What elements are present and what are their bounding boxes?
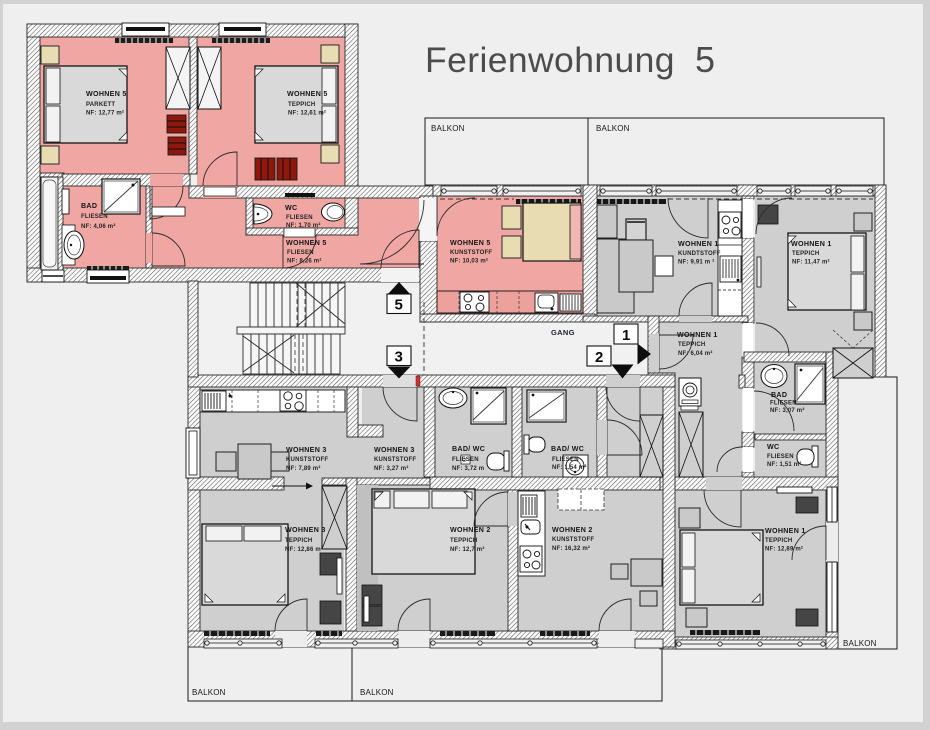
svg-text:5: 5: [695, 39, 715, 80]
svg-text:TEPPICH: TEPPICH: [678, 342, 705, 348]
svg-text:5: 5: [395, 297, 403, 314]
svg-text:1: 1: [622, 327, 630, 344]
svg-text:KUNSTSTOFF: KUNSTSTOFF: [450, 250, 492, 256]
svg-text:BALKON: BALKON: [192, 688, 226, 697]
svg-text:FLIESEN: FLIESEN: [287, 250, 314, 256]
svg-text:WOHNEN 1: WOHNEN 1: [677, 331, 718, 339]
svg-text:3: 3: [395, 349, 403, 366]
svg-text:GANG: GANG: [551, 328, 575, 337]
svg-text:NF: 7,89 m²: NF: 7,89 m²: [286, 465, 321, 472]
svg-text:WOHNEN 1: WOHNEN 1: [678, 240, 719, 248]
svg-text:PARKETT: PARKETT: [86, 102, 115, 108]
svg-text:WOHNEN 5: WOHNEN 5: [86, 90, 127, 98]
svg-text:WOHNEN 2: WOHNEN 2: [552, 526, 593, 534]
svg-text:NF: 3,72 m: NF: 3,72 m: [452, 466, 484, 472]
svg-text:FLIESEN: FLIESEN: [452, 457, 479, 463]
svg-text:NF: 1,70 m²: NF: 1,70 m²: [286, 222, 321, 229]
svg-text:2: 2: [595, 349, 603, 366]
svg-text:NF: 3,07 m²: NF: 3,07 m²: [770, 407, 805, 414]
svg-text:NF: 3,27 m²: NF: 3,27 m²: [374, 465, 409, 472]
svg-text:TEPPICH: TEPPICH: [288, 102, 315, 108]
svg-text:WOHNEN 5: WOHNEN 5: [286, 239, 327, 247]
svg-text:BALKON: BALKON: [596, 124, 630, 133]
svg-text:NF: 1,51 m²: NF: 1,51 m²: [767, 461, 802, 468]
svg-text:NF: 6,04 m²: NF: 6,04 m²: [678, 350, 713, 357]
svg-text:TEPPICH: TEPPICH: [450, 538, 477, 544]
svg-text:NF: 10,03 m²: NF: 10,03 m²: [450, 258, 488, 265]
svg-text:KUNSTSTOFF: KUNSTSTOFF: [374, 457, 416, 463]
svg-text:BALKON: BALKON: [360, 688, 394, 697]
svg-text:WOHNEN 3: WOHNEN 3: [285, 526, 326, 534]
svg-text:FLIESEN: FLIESEN: [770, 401, 797, 407]
svg-text:TEPPICH: TEPPICH: [285, 538, 312, 544]
svg-text:KUNDTSTOFF: KUNDTSTOFF: [678, 251, 721, 257]
svg-text:BAD/ WC: BAD/ WC: [551, 445, 584, 453]
svg-text:KUNSTSTOFF: KUNSTSTOFF: [286, 457, 328, 463]
svg-text:Ferienwohnung: Ferienwohnung: [425, 40, 675, 80]
svg-text:NF: 4,06 m²: NF: 4,06 m²: [81, 223, 116, 230]
svg-text:BALKON: BALKON: [843, 639, 877, 648]
svg-text:FLIESEN: FLIESEN: [767, 454, 794, 460]
svg-text:BAD/ WC: BAD/ WC: [452, 445, 485, 453]
svg-text:KUNSTSTOFF: KUNSTSTOFF: [552, 537, 594, 543]
svg-text:NF: 12,7 m²: NF: 12,7 m²: [450, 546, 485, 553]
svg-text:WOHNEN 2: WOHNEN 2: [450, 526, 491, 534]
svg-text:NF: 12,77 m²: NF: 12,77 m²: [86, 110, 124, 117]
svg-text:NF: 12,61 m²: NF: 12,61 m²: [288, 110, 326, 117]
svg-text:WC: WC: [285, 204, 297, 212]
svg-text:WOHNEN 1: WOHNEN 1: [765, 527, 806, 535]
svg-text:NF: 9,91 m ²: NF: 9,91 m ²: [678, 259, 714, 266]
svg-text:NF: 1,54 m²: NF: 1,54 m²: [552, 464, 587, 471]
svg-text:FLIESEN: FLIESEN: [286, 215, 313, 221]
svg-text:TEPPICH: TEPPICH: [765, 538, 792, 544]
svg-text:FLIESEN: FLIESEN: [552, 457, 579, 463]
svg-text:WOHNEN 3: WOHNEN 3: [286, 446, 327, 454]
svg-text:NF: 8,26 m²: NF: 8,26 m²: [287, 258, 322, 265]
svg-text:NF: 12,86 m²: NF: 12,86 m²: [285, 546, 323, 553]
svg-text:WOHNEN 1: WOHNEN 1: [791, 240, 832, 248]
svg-text:NF: 11,47 m²: NF: 11,47 m²: [792, 259, 830, 266]
svg-text:NF: 16,32 m²: NF: 16,32 m²: [552, 545, 590, 552]
svg-text:WOHNEN 3: WOHNEN 3: [374, 446, 415, 454]
svg-text:WOHNEN 5: WOHNEN 5: [287, 90, 328, 98]
svg-text:TEPPICH: TEPPICH: [792, 251, 819, 257]
svg-text:BAD: BAD: [771, 391, 787, 399]
svg-text:WC: WC: [767, 443, 779, 451]
svg-text:BALKON: BALKON: [431, 124, 465, 133]
svg-text:NF: 12,89 m²: NF: 12,89 m²: [765, 546, 803, 553]
svg-text:BAD: BAD: [81, 202, 97, 210]
svg-text:WOHNEN 5: WOHNEN 5: [450, 239, 491, 247]
svg-text:FLIESEN: FLIESEN: [81, 214, 108, 220]
